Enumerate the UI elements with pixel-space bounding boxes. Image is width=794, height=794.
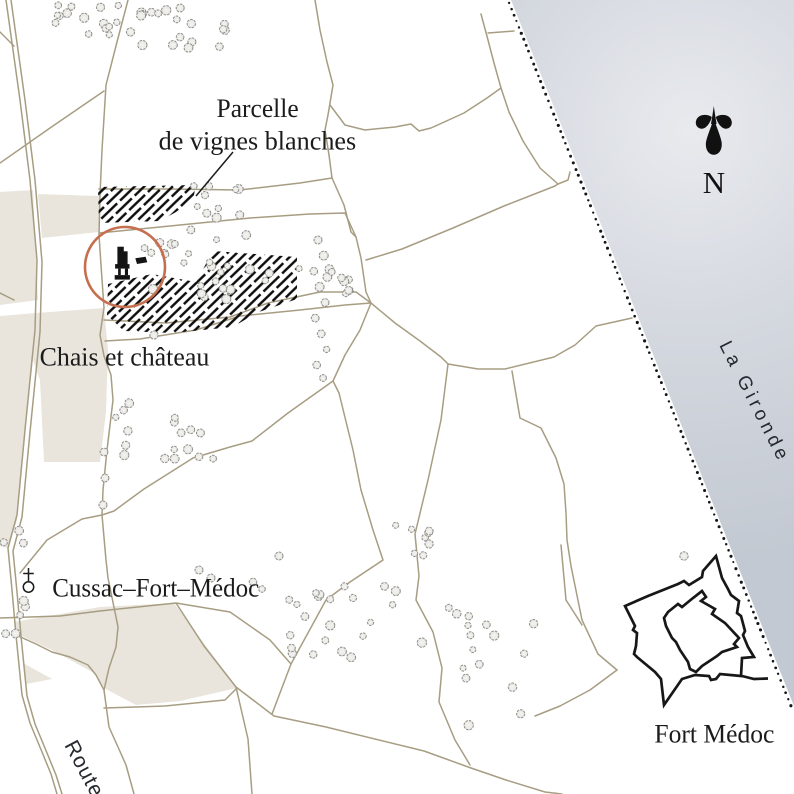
- svg-text:Cussac–Fort–Médoc: Cussac–Fort–Médoc: [52, 574, 259, 603]
- svg-text:Chais et château: Chais et château: [40, 342, 210, 371]
- svg-text:Fort Médoc: Fort Médoc: [654, 720, 774, 749]
- svg-text:de vignes blanches: de vignes blanches: [159, 127, 357, 156]
- svg-text:N: N: [703, 165, 725, 200]
- svg-text:Parcelle: Parcelle: [217, 94, 299, 123]
